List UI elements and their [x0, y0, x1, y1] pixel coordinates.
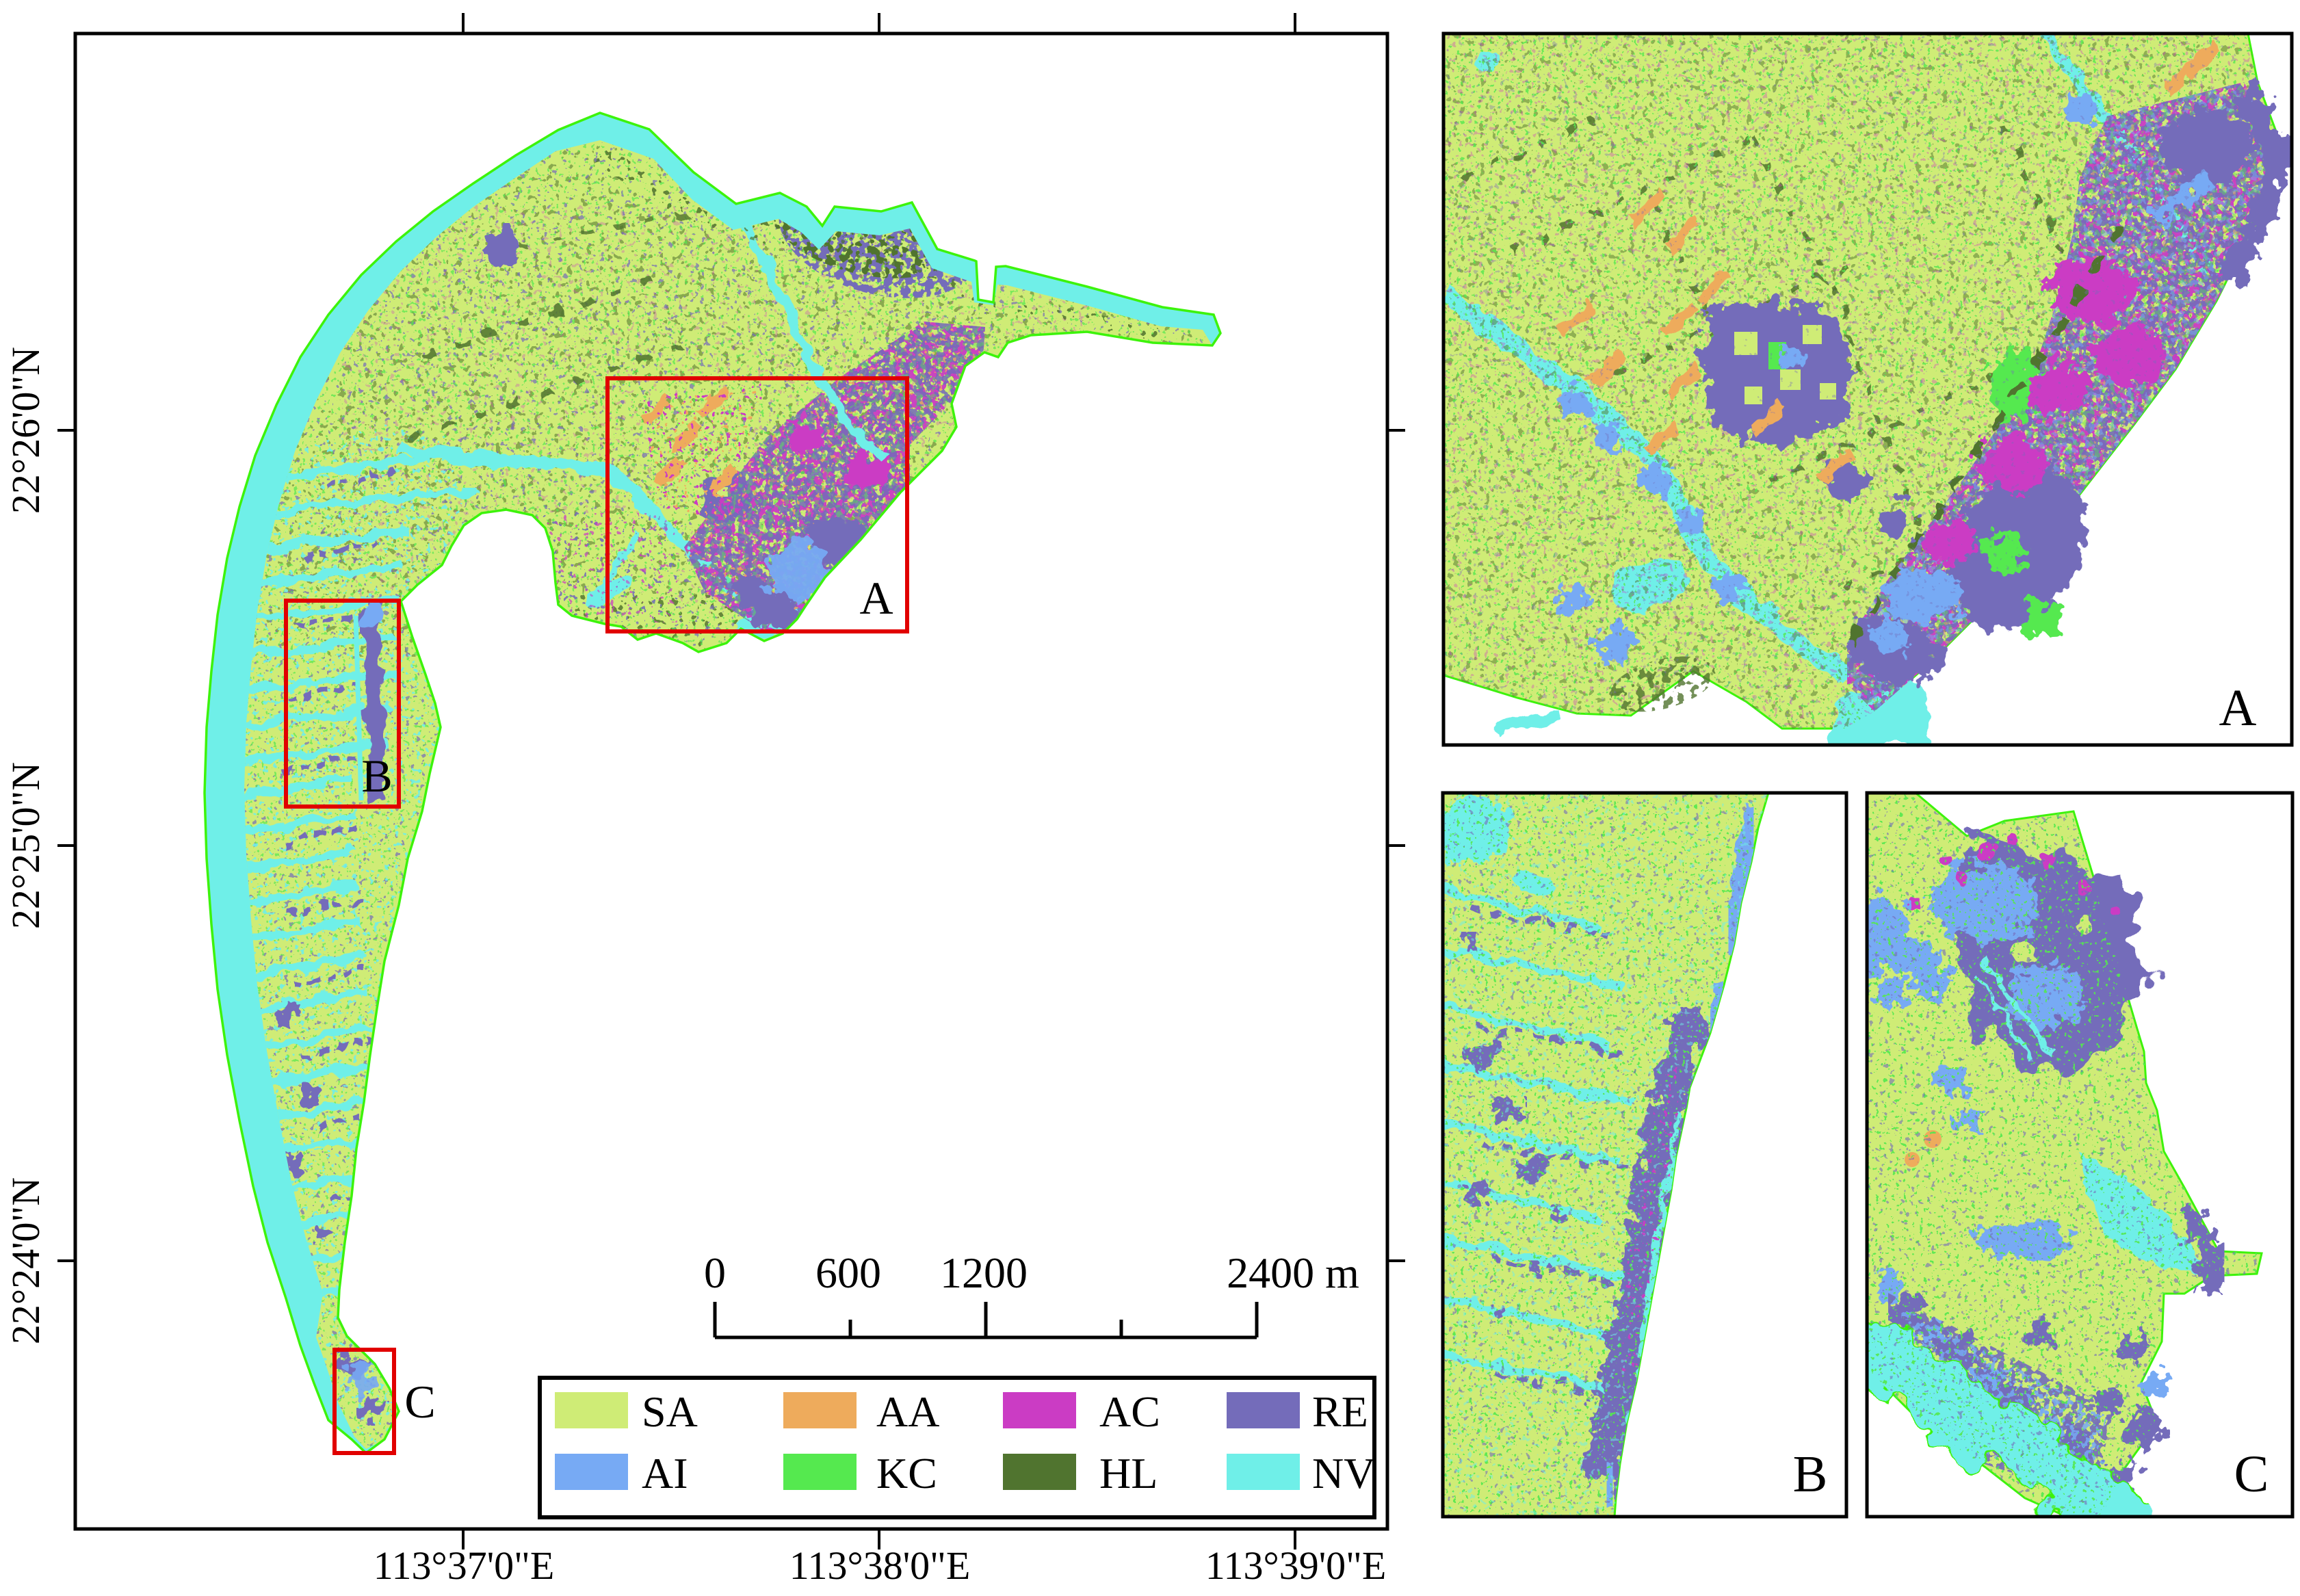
svg-text:600: 600 — [815, 1248, 881, 1297]
svg-text:B: B — [1793, 1445, 1828, 1503]
svg-text:KC: KC — [876, 1449, 937, 1497]
svg-text:C: C — [404, 1376, 435, 1428]
svg-text:NV: NV — [1312, 1449, 1375, 1497]
svg-text:SA: SA — [642, 1387, 698, 1436]
svg-text:113°37'0"E: 113°37'0"E — [374, 1543, 555, 1588]
svg-text:A: A — [2219, 679, 2257, 737]
svg-text:RE: RE — [1312, 1387, 1368, 1436]
svg-text:113°38'0"E: 113°38'0"E — [789, 1543, 971, 1588]
svg-text:0: 0 — [704, 1248, 726, 1297]
svg-text:22°26'0"N: 22°26'0"N — [3, 347, 48, 514]
svg-text:B: B — [361, 750, 392, 802]
svg-text:HL: HL — [1099, 1449, 1158, 1497]
svg-text:C: C — [2234, 1445, 2269, 1503]
svg-text:2400 m: 2400 m — [1227, 1248, 1359, 1297]
svg-text:22°25'0"N: 22°25'0"N — [3, 762, 48, 929]
svg-text:AC: AC — [1099, 1387, 1160, 1436]
svg-text:A: A — [859, 572, 893, 624]
svg-text:AI: AI — [642, 1449, 688, 1497]
svg-text:1200: 1200 — [940, 1248, 1028, 1297]
svg-text:AA: AA — [876, 1387, 939, 1436]
svg-text:113°39'0"E: 113°39'0"E — [1205, 1543, 1387, 1588]
svg-text:22°24'0"N: 22°24'0"N — [3, 1177, 48, 1344]
